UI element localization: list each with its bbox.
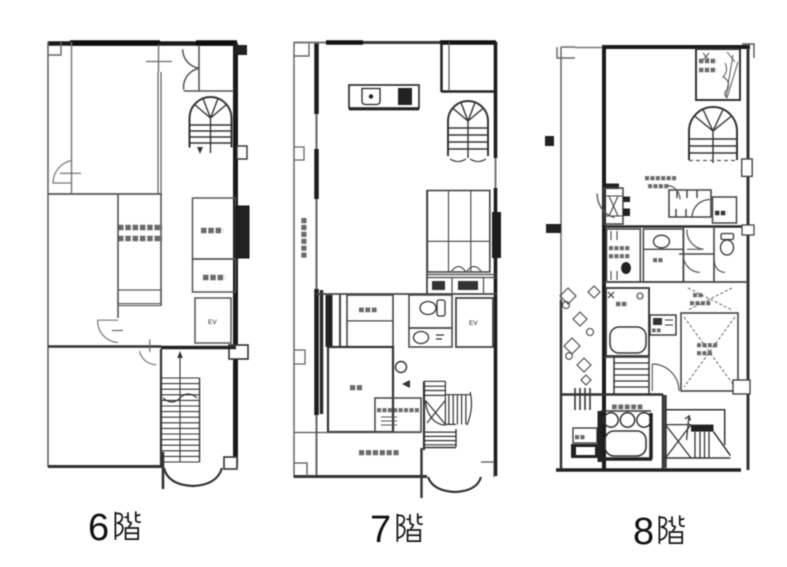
svg-text:EV: EV [469, 320, 478, 327]
svg-text:7: 7 [370, 509, 391, 551]
svg-text:6: 6 [88, 507, 109, 549]
svg-text:EV: EV [208, 319, 217, 326]
svg-text:8: 8 [633, 511, 654, 553]
